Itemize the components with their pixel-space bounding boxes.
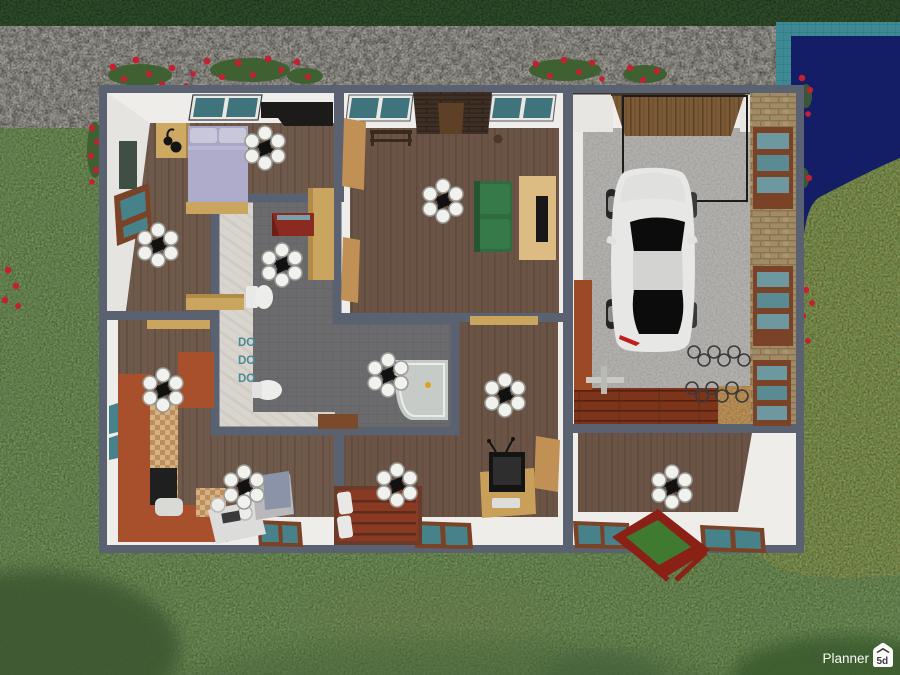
svg-text:Planner: Planner	[822, 651, 869, 666]
svg-text:DO: DO	[238, 337, 255, 349]
svg-text:5d: 5d	[877, 656, 889, 667]
svg-text:DO: DO	[238, 355, 255, 367]
